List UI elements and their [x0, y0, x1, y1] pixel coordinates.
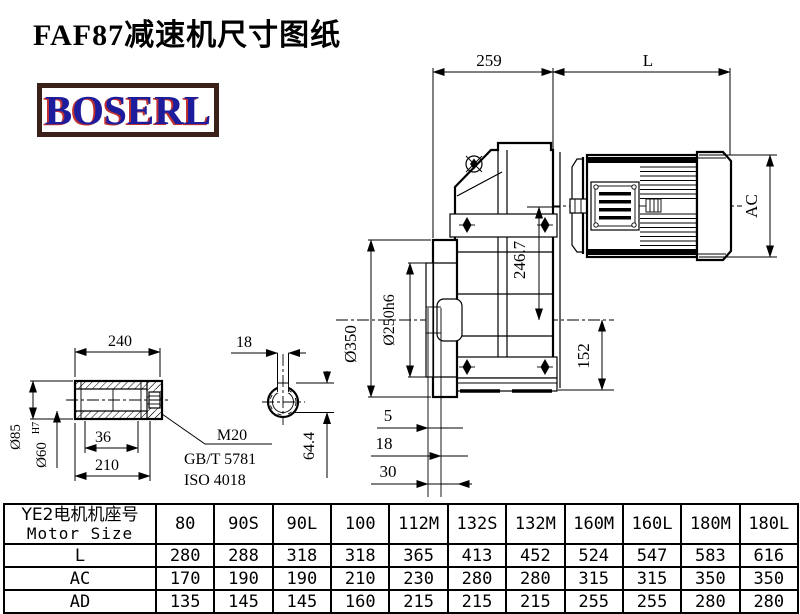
- dim-offsets: 5 18 30: [371, 406, 472, 484]
- table-header-cell: 160L: [623, 504, 681, 544]
- table-cell: 280: [506, 567, 564, 590]
- dim-bore-tol-label: H7: [31, 422, 42, 434]
- dim-152-label: 152: [574, 343, 593, 369]
- dim-18-offset-label: 18: [376, 434, 393, 453]
- dim-240-label: 240: [108, 333, 132, 350]
- dim-259-label: 259: [476, 51, 502, 70]
- dim-64-4-label: 64.4: [301, 432, 318, 460]
- table-row-label: AD: [4, 590, 156, 613]
- dim-36-label: 36: [95, 429, 111, 446]
- table-cell: 315: [623, 567, 681, 590]
- dim-L-label: L: [643, 51, 653, 70]
- table-header-cell: 160M: [565, 504, 623, 544]
- dim-flange-od-label: Ø350: [341, 325, 360, 363]
- table-row-label: AC: [4, 567, 156, 590]
- terminal-box: [591, 182, 639, 230]
- table-cell: 280: [681, 590, 739, 613]
- table-cell: 365: [389, 544, 447, 567]
- output-flange: [426, 240, 462, 497]
- table-header-cn: YE2电机机座号: [5, 506, 155, 525]
- table-cell: 170: [156, 567, 214, 590]
- table-header-cell: 90L: [273, 504, 331, 544]
- dim-246-7-label: 246.7: [510, 240, 529, 279]
- table-cell: 524: [565, 544, 623, 567]
- table-cell: 215: [448, 590, 506, 613]
- table-cell: 350: [681, 567, 739, 590]
- motor-adapter: [570, 157, 587, 254]
- table-row: AC170190190210230280280315315350350: [4, 567, 798, 590]
- table-cell: 318: [273, 544, 331, 567]
- table-cell: 280: [156, 544, 214, 567]
- table-header-en: Motor Size: [5, 525, 155, 543]
- table-cell: 190: [214, 567, 272, 590]
- main-view-gearbox-motor: 259 L AC Ø350 Ø250h6 246.7: [336, 51, 777, 497]
- table-cell: 135: [156, 590, 214, 613]
- dim-od-label: Ø85: [8, 424, 24, 450]
- table-cell: 280: [740, 590, 798, 613]
- hollow-shaft-view: 240 Ø85 Ø60 H7 36 210 M20 GB/T 5781 ISO …: [8, 333, 272, 489]
- dim-30-label: 30: [380, 462, 397, 481]
- table-cell: 190: [273, 567, 331, 590]
- table-header-cell: 112M: [389, 504, 447, 544]
- table-cell: 350: [740, 567, 798, 590]
- table-cell: 315: [565, 567, 623, 590]
- table-cell: 145: [214, 590, 272, 613]
- standard-iso-label: ISO 4018: [184, 472, 246, 489]
- table-cell: 255: [565, 590, 623, 613]
- dim-AC-label: AC: [742, 194, 761, 218]
- table-cell: 413: [448, 544, 506, 567]
- dim-5-label: 5: [384, 406, 393, 425]
- table-cell: 145: [273, 590, 331, 613]
- table-cell: 160: [331, 590, 389, 613]
- table-header-cell: 180M: [681, 504, 739, 544]
- dimension-drawing: 259 L AC Ø350 Ø250h6 246.7: [0, 0, 800, 505]
- table-cell: 547: [623, 544, 681, 567]
- thread-label: M20: [217, 427, 247, 444]
- standard-gb-label: GB/T 5781: [184, 451, 256, 468]
- table-cell: 215: [389, 590, 447, 613]
- table-cell: 583: [681, 544, 739, 567]
- dim-spigot-od-label: Ø250h6: [381, 294, 398, 346]
- table-header-cell: 90S: [214, 504, 272, 544]
- dim-flange: Ø350 Ø250h6: [341, 240, 431, 397]
- table-cell: 230: [389, 567, 447, 590]
- fan-cover: [697, 152, 731, 260]
- dim-keyway-width-label: 18: [236, 334, 252, 351]
- table-header-cell: 132S: [448, 504, 506, 544]
- dim-bore-label: Ø60: [34, 442, 50, 468]
- table-row-label: L: [4, 544, 156, 567]
- motor-size-table: YE2电机机座号Motor Size8090S90L100112M132S132…: [3, 503, 799, 614]
- table-cell: 215: [506, 590, 564, 613]
- motor: [587, 152, 731, 260]
- gearbox-housing: [455, 143, 553, 390]
- table-cell: 318: [331, 544, 389, 567]
- table-cell: 210: [331, 567, 389, 590]
- table-header-cell: 132M: [506, 504, 564, 544]
- table-row: L280288318318365413452524547583616: [4, 544, 798, 567]
- table-header-cell: 180L: [740, 504, 798, 544]
- table-cell: 280: [448, 567, 506, 590]
- table-header-cell: 80: [156, 504, 214, 544]
- dim-210-label: 210: [95, 457, 119, 474]
- table-cell: 452: [506, 544, 564, 567]
- table-header-motor-size: YE2电机机座号Motor Size: [4, 504, 156, 544]
- table-header-cell: 100: [331, 504, 389, 544]
- table-cell: 616: [740, 544, 798, 567]
- table-row: AD135145145160215215215255255280280: [4, 590, 798, 613]
- table-cell: 288: [214, 544, 272, 567]
- table-cell: 255: [623, 590, 681, 613]
